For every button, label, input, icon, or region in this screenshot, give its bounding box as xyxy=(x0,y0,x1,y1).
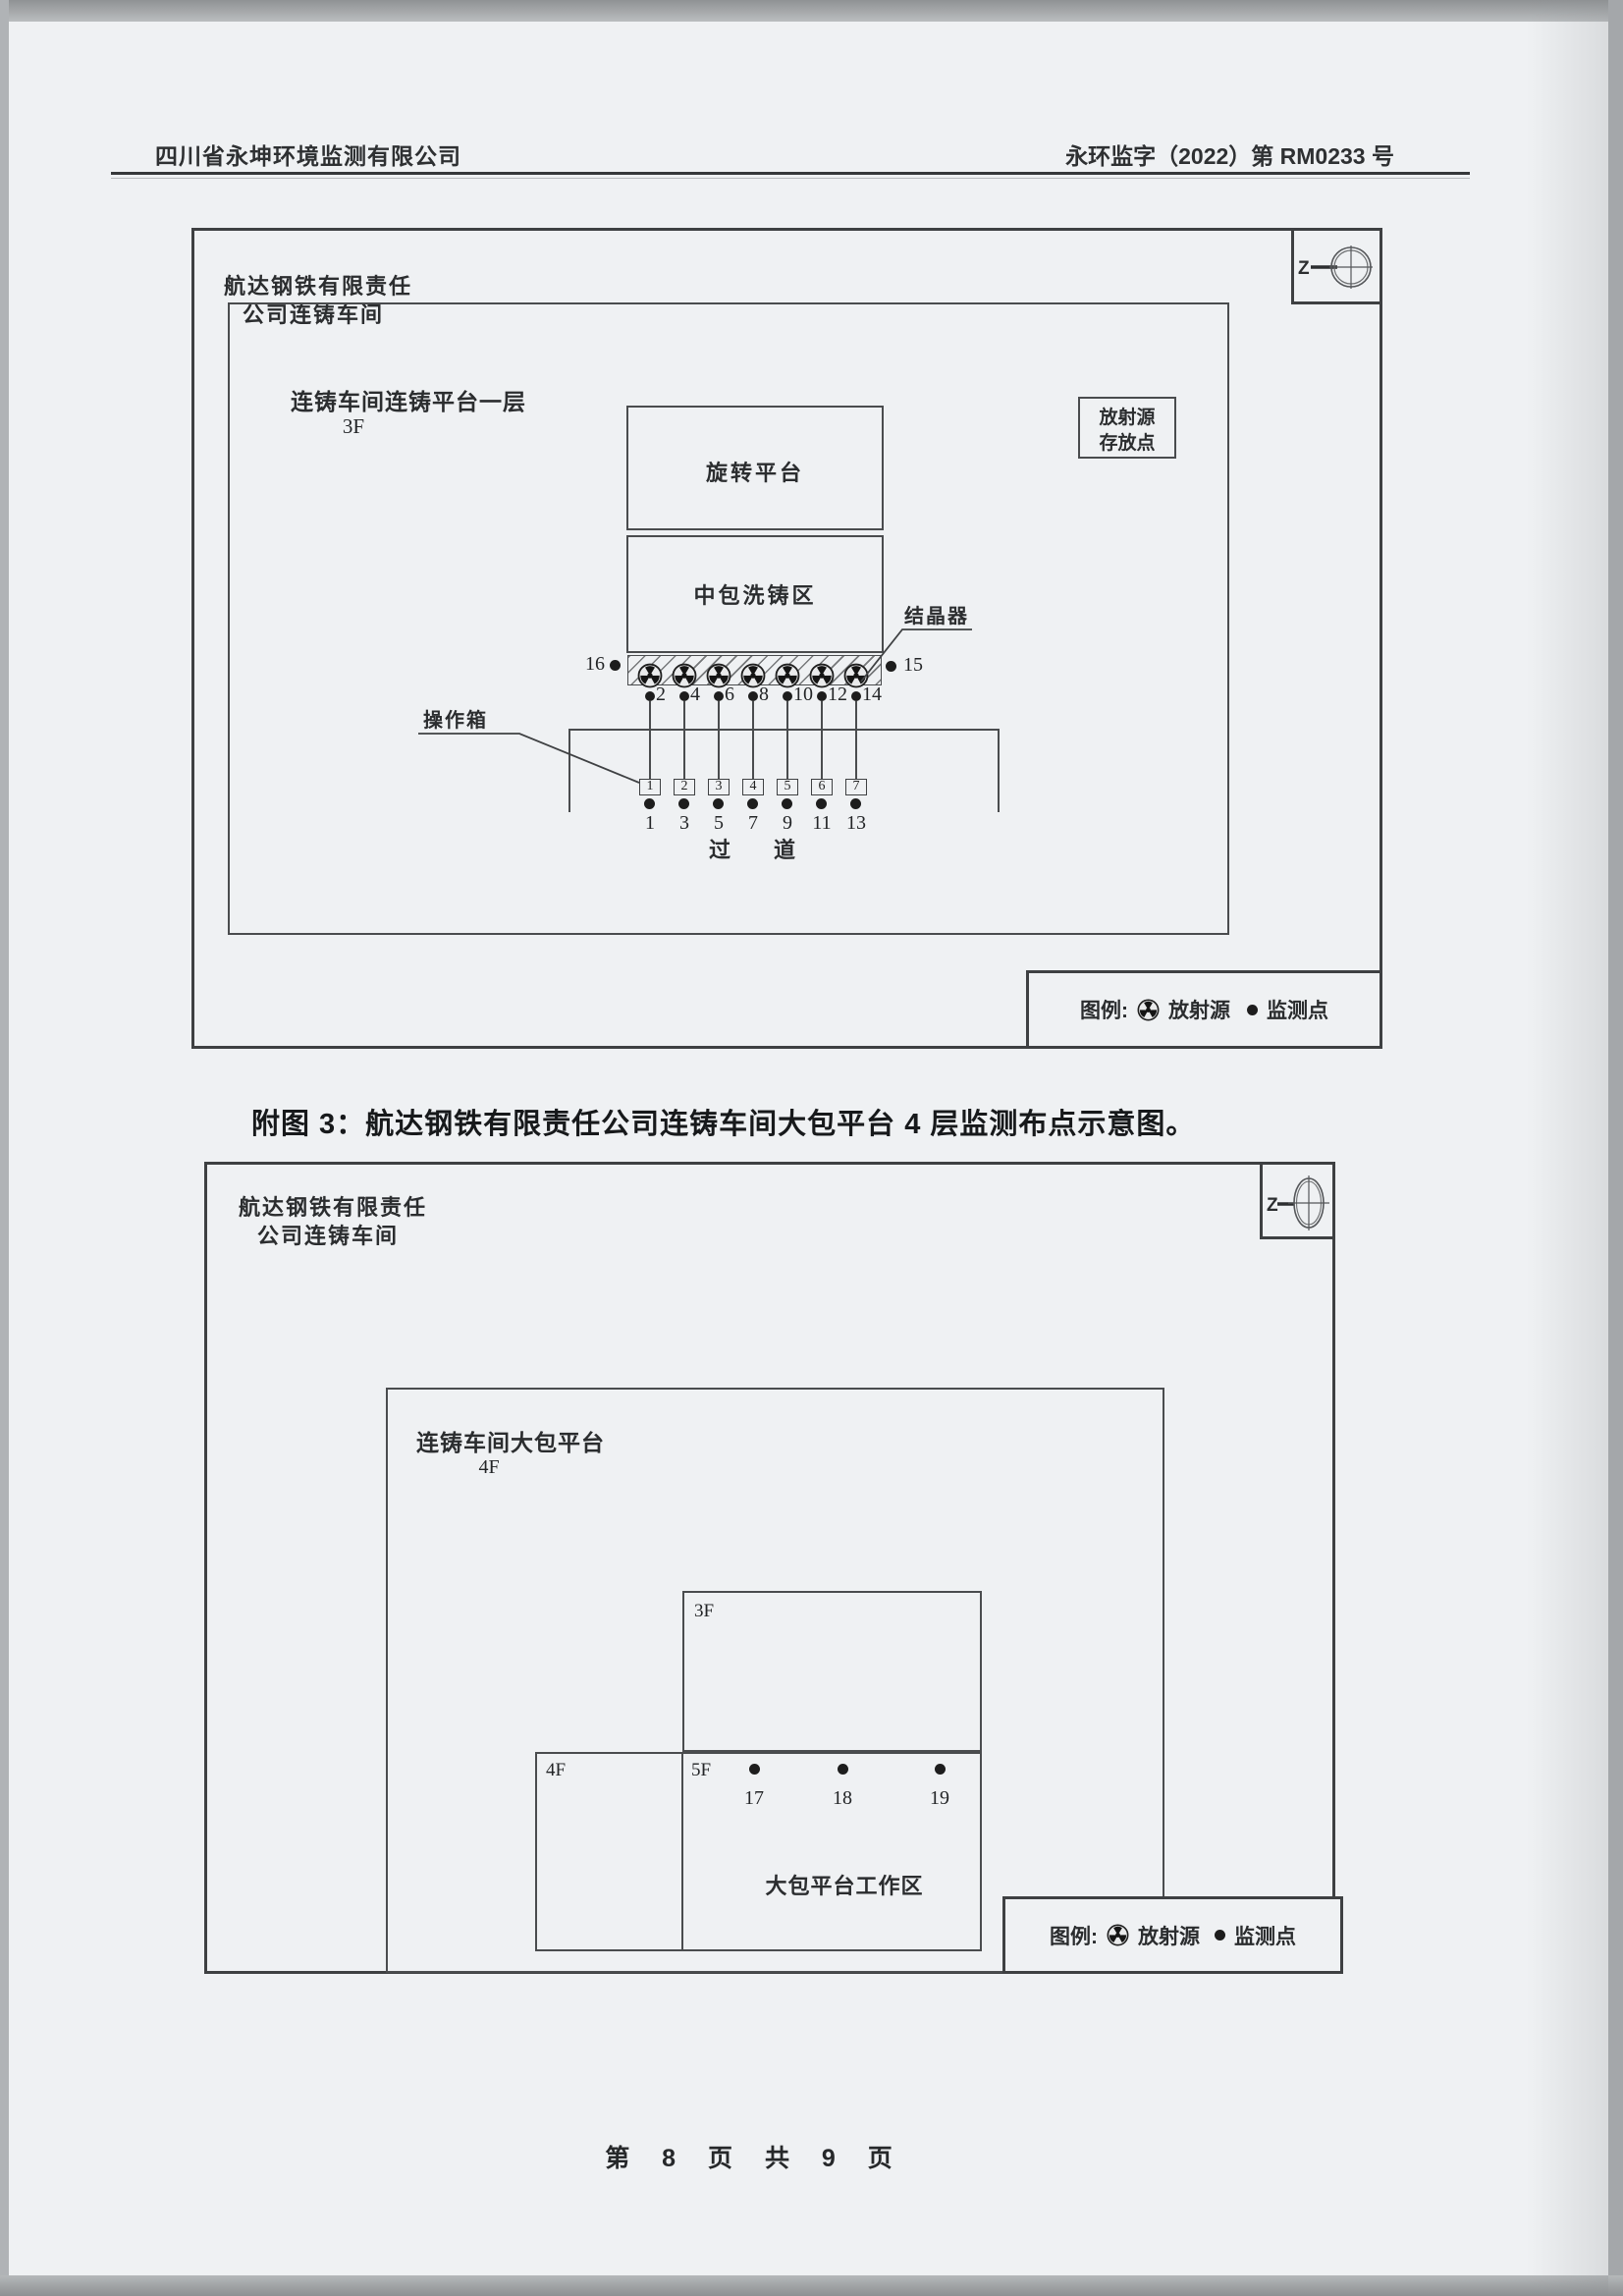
monitor-point xyxy=(816,798,827,809)
header-rule-echo xyxy=(111,178,1470,179)
monitor-point xyxy=(749,1764,760,1775)
monitor-point xyxy=(783,691,792,701)
scanned-document-page: { "header": { "company": "四川省永坤环境监测有限公司"… xyxy=(0,0,1623,2296)
connector-line xyxy=(683,701,685,780)
scan-edge-right xyxy=(1608,0,1623,2296)
legend-label: 图例: xyxy=(1080,995,1128,1024)
operation-box: 3 xyxy=(708,779,730,795)
legend: 图例: 放射源 监测点 xyxy=(1029,973,1380,1046)
box-4f-5f xyxy=(535,1752,982,1951)
diagram1-floor-label: 3F xyxy=(332,414,375,439)
monitor-point-label: 14 xyxy=(862,683,882,706)
operation-box: 7 xyxy=(845,779,867,795)
monitor-point-label: 1 xyxy=(634,812,666,835)
operation-box-number: 7 xyxy=(853,779,860,793)
north-compass-icon: Z xyxy=(1296,240,1373,295)
crystallizer-label: 结晶器 xyxy=(904,600,969,629)
monitor-point xyxy=(851,691,861,701)
operation-box: 5 xyxy=(777,779,798,795)
rotate-platform-label: 旋转平台 xyxy=(626,456,884,487)
monitor-point-label: 9 xyxy=(772,812,803,835)
connector-line xyxy=(649,701,651,780)
monitor-point-label: 12 xyxy=(828,683,847,706)
legend-source-label: 放射源 xyxy=(1168,995,1230,1024)
monitor-point xyxy=(644,798,655,809)
north-compass-icon: Z xyxy=(1267,1171,1333,1233)
monitor-point xyxy=(935,1764,946,1775)
operation-box: 1 xyxy=(639,779,661,795)
header-rule xyxy=(111,172,1470,175)
legend-monitor-label: 监测点 xyxy=(1234,1921,1296,1950)
monitor-point-label: 18 xyxy=(823,1787,862,1810)
monitor-point-label: 3 xyxy=(669,812,700,835)
operator-box-label: 操作箱 xyxy=(423,704,488,733)
connector-line xyxy=(786,701,788,780)
monitor-point-label: 5 xyxy=(703,812,734,835)
monitor-point xyxy=(748,691,758,701)
monitor-point-16-label: 16 xyxy=(575,653,605,676)
monitor-point xyxy=(645,691,655,701)
scan-edge-top xyxy=(0,0,1623,22)
compass-letter: Z xyxy=(1298,258,1310,279)
room-wall-left xyxy=(568,729,570,812)
compass-letter: Z xyxy=(1267,1195,1278,1216)
diagram2-workshop-line2: 公司连铸车间 xyxy=(257,1219,399,1250)
box-divider-line xyxy=(681,1752,683,1951)
monitor-point xyxy=(782,798,792,809)
radiation-source-icon xyxy=(1137,999,1160,1021)
monitor-point-15 xyxy=(886,661,896,672)
monitor-point-label: 11 xyxy=(806,812,838,835)
monitor-point-icon xyxy=(1247,1005,1258,1015)
room-wall-top xyxy=(568,729,1000,731)
box-5f-label: 5F xyxy=(691,1760,711,1781)
monitor-point-label: 7 xyxy=(737,812,769,835)
room-wall-right xyxy=(998,729,1000,812)
box-3f xyxy=(682,1591,982,1752)
monitor-point xyxy=(747,798,758,809)
operation-box-number: 6 xyxy=(819,779,826,793)
connector-line xyxy=(821,701,823,780)
aisle-label: 过 道 xyxy=(709,833,795,864)
monitor-point-label: 8 xyxy=(759,683,769,706)
source-storage-line2: 存放点 xyxy=(1078,428,1176,455)
figure-caption: 附图 3：航达钢铁有限责任公司连铸车间大包平台 4 层监测布点示意图。 xyxy=(251,1101,1195,1142)
operation-box-number: 5 xyxy=(784,779,791,793)
operation-box-number: 4 xyxy=(750,779,757,793)
monitor-point xyxy=(838,1764,848,1775)
monitor-point-16 xyxy=(610,660,621,671)
tundish-area-label: 中包洗铸区 xyxy=(626,578,884,610)
diagram2-floor-label: 4F xyxy=(460,1456,518,1479)
monitor-point xyxy=(679,691,689,701)
legend: 图例: 放射源 监测点 xyxy=(1005,1899,1340,1971)
operation-box-number: 3 xyxy=(716,779,723,793)
monitor-point-15-label: 15 xyxy=(903,654,923,677)
monitor-point-label: 6 xyxy=(725,683,734,706)
diagram2-legend-box: 图例: 放射源 监测点 xyxy=(1002,1896,1343,1974)
monitor-point xyxy=(817,691,827,701)
operation-box: 2 xyxy=(674,779,695,795)
diagram1-area-label: 连铸车间连铸平台一层 xyxy=(291,383,526,416)
diagram2-area-label: 连铸车间大包平台 xyxy=(416,1424,605,1457)
page-number: 第 8 页 共 9 页 xyxy=(566,2139,939,2174)
header-doc-number: 永环监字（2022）第 RM0233 号 xyxy=(884,137,1394,171)
legend-label: 图例: xyxy=(1050,1921,1098,1950)
monitor-point-label: 13 xyxy=(840,812,872,835)
scan-shade-right xyxy=(1527,0,1608,2296)
monitor-point-label: 19 xyxy=(920,1787,959,1810)
operation-box: 4 xyxy=(742,779,764,795)
scan-edge-left xyxy=(0,0,9,2296)
operation-box-number: 2 xyxy=(681,779,688,793)
operation-box-number: 1 xyxy=(647,779,654,793)
monitor-point-label: 4 xyxy=(690,683,700,706)
diagram2-workshop-line1: 航达钢铁有限责任 xyxy=(239,1190,427,1222)
legend-monitor-label: 监测点 xyxy=(1267,995,1328,1024)
monitor-point-label: 10 xyxy=(793,683,813,706)
monitor-point-label: 2 xyxy=(656,683,666,706)
monitor-point xyxy=(714,691,724,701)
monitor-point-icon xyxy=(1215,1930,1225,1941)
monitor-point xyxy=(850,798,861,809)
radiation-source-icon xyxy=(1107,1924,1129,1946)
legend-source-label: 放射源 xyxy=(1138,1921,1200,1950)
connector-line xyxy=(752,701,754,780)
monitor-point xyxy=(713,798,724,809)
connector-line xyxy=(718,701,720,780)
operation-box: 6 xyxy=(811,779,833,795)
connector-line xyxy=(855,701,857,780)
work-area-label: 大包平台工作区 xyxy=(731,1869,957,1900)
scan-edge-bottom xyxy=(0,2275,1623,2296)
diagram1-legend-box: 图例: 放射源 监测点 xyxy=(1026,970,1382,1049)
box-3f-label: 3F xyxy=(694,1601,714,1622)
box-4f-label: 4F xyxy=(546,1760,566,1781)
diagram1-workshop-line1: 航达钢铁有限责任 xyxy=(224,269,412,301)
source-storage-line1: 放射源 xyxy=(1078,403,1176,429)
monitor-point-label: 17 xyxy=(734,1787,774,1810)
monitor-point xyxy=(678,798,689,809)
header-company: 四川省永坤环境监测有限公司 xyxy=(155,137,461,171)
